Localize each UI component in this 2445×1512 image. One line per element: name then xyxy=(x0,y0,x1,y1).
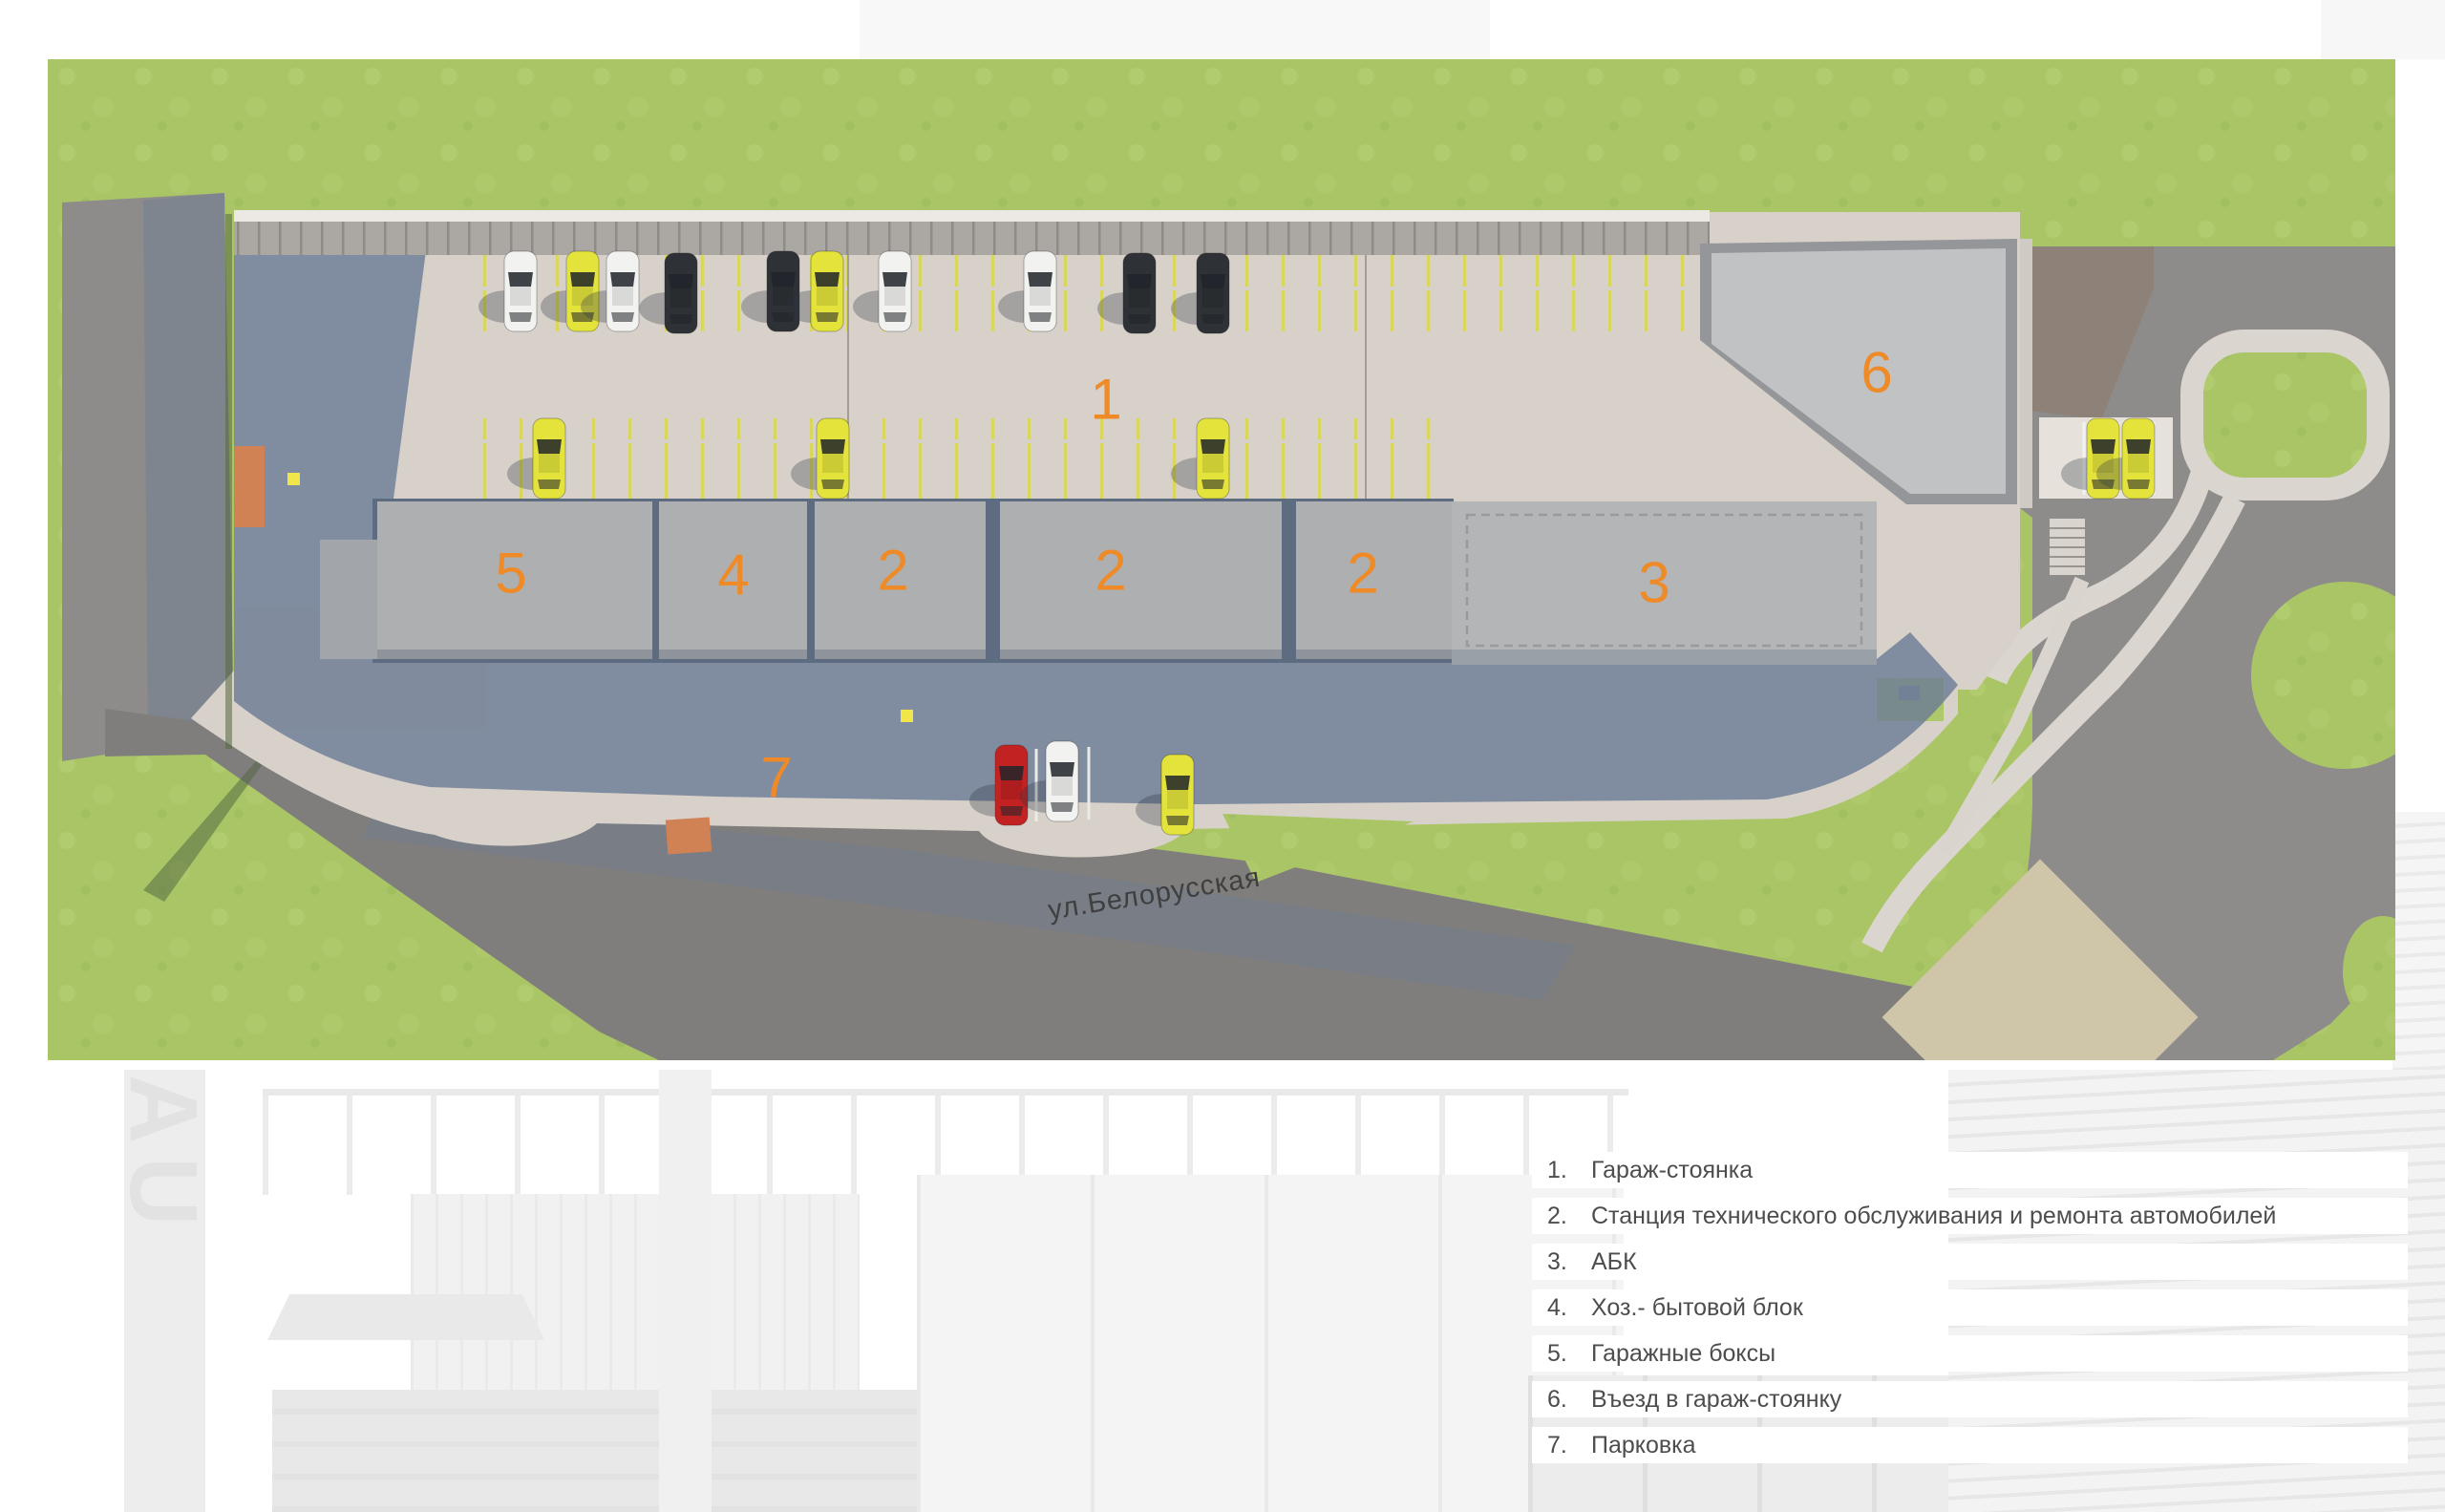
legend-label: Гараж-стоянка xyxy=(1591,1152,1753,1188)
legend-row-6: 6. Въезд в гараж-стоянку xyxy=(1532,1381,2408,1417)
legend-label: Гаражные боксы xyxy=(1591,1335,1775,1372)
legend-label: Хоз.- бытовой блок xyxy=(1591,1289,1803,1326)
backdrop-glass-wall xyxy=(917,1175,1624,1512)
area-marker-2a: 2 xyxy=(877,539,908,603)
legend-row-5: 5. Гаражные боксы xyxy=(1532,1335,2408,1372)
legend-num: 6. xyxy=(1532,1381,1591,1417)
area-marker-3: 3 xyxy=(1638,551,1669,615)
area-marker-5: 5 xyxy=(495,542,526,606)
legend: 1. Гараж-стоянка 2. Станция технического… xyxy=(1532,1152,2408,1463)
legend-num: 2. xyxy=(1532,1198,1591,1234)
backdrop-signage-text: AU xyxy=(108,1075,218,1239)
legend-num: 3. xyxy=(1532,1244,1591,1280)
backdrop-top-band xyxy=(860,0,1490,59)
backdrop-top-band-right xyxy=(2321,0,2445,59)
legend-row-4: 4. Хоз.- бытовой блок xyxy=(1532,1289,2408,1326)
legend-num: 4. xyxy=(1532,1289,1591,1326)
area-marker-6: 6 xyxy=(1860,341,1892,405)
legend-num: 7. xyxy=(1532,1427,1591,1463)
area-marker-2b: 2 xyxy=(1095,539,1126,603)
legend-row-1: 1. Гараж-стоянка xyxy=(1532,1152,2408,1188)
legend-num: 5. xyxy=(1532,1335,1591,1372)
backdrop-awning xyxy=(267,1294,544,1340)
site-plan-svg: 1 5 4 2 2 2 3 6 7 ул.Белорусская xyxy=(48,59,2395,1060)
legend-label: Въезд в гараж-стоянку xyxy=(1591,1381,1841,1417)
area-marker-4: 4 xyxy=(717,543,749,607)
legend-row-2: 2. Станция технического обслуживания и р… xyxy=(1532,1198,2408,1234)
building-2b xyxy=(1000,501,1282,659)
area-marker-2c: 2 xyxy=(1347,542,1378,606)
legend-label: АБК xyxy=(1591,1244,1637,1280)
area-marker-1: 1 xyxy=(1090,368,1121,432)
area-marker-7: 7 xyxy=(760,746,792,810)
legend-row-3: 3. АБК xyxy=(1532,1244,2408,1280)
site-plan: 1 5 4 2 2 2 3 6 7 ул.Белорусская xyxy=(48,59,2395,1060)
backdrop-storefront xyxy=(272,1390,922,1512)
backdrop-column xyxy=(659,1070,712,1512)
legend-label: Станция технического обслуживания и ремо… xyxy=(1591,1198,2276,1234)
legend-label: Парковка xyxy=(1591,1427,1696,1463)
presentation-page: { "plan": { "street_label": "ул.Белорусс… xyxy=(0,0,2445,1512)
legend-row-7: 7. Парковка xyxy=(1532,1427,2408,1463)
legend-num: 1. xyxy=(1532,1152,1591,1188)
